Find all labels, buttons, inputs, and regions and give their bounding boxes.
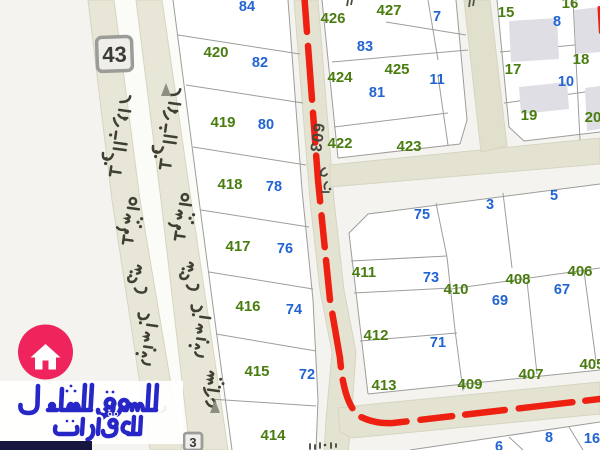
svg-text:72: 72	[299, 367, 315, 383]
svg-text:74: 74	[286, 302, 302, 318]
svg-text:415: 415	[244, 363, 269, 380]
svg-text:5: 5	[550, 188, 558, 204]
svg-text:75: 75	[414, 207, 430, 223]
svg-text:73: 73	[423, 270, 439, 286]
svg-text:408: 408	[505, 271, 530, 288]
svg-text:67: 67	[554, 282, 570, 298]
svg-text:405: 405	[579, 356, 600, 373]
svg-text:419: 419	[210, 114, 235, 131]
svg-text:426: 426	[320, 10, 345, 27]
svg-text:410: 410	[443, 281, 468, 298]
svg-text:71: 71	[430, 335, 446, 351]
svg-text:423: 423	[396, 138, 421, 155]
svg-text:18: 18	[573, 51, 590, 68]
svg-text:414: 414	[260, 427, 286, 444]
svg-text:422: 422	[327, 135, 352, 152]
svg-text:417: 417	[225, 238, 250, 255]
svg-text:80: 80	[258, 117, 274, 133]
svg-text:412: 412	[363, 327, 388, 344]
svg-text:418: 418	[217, 176, 242, 193]
svg-text:8: 8	[553, 14, 561, 30]
svg-text:420: 420	[203, 44, 228, 61]
svg-text:406: 406	[567, 263, 592, 280]
svg-text:76: 76	[277, 241, 293, 257]
svg-text:411: 411	[352, 264, 376, 281]
svg-text:69: 69	[492, 293, 508, 309]
svg-text:3: 3	[486, 197, 494, 213]
svg-text:416: 416	[235, 298, 260, 315]
svg-text:11: 11	[429, 72, 444, 88]
svg-text:15: 15	[498, 4, 515, 21]
svg-text:6: 6	[495, 439, 503, 450]
svg-text:425: 425	[384, 61, 409, 78]
svg-text:424: 424	[327, 69, 353, 86]
svg-text:81: 81	[369, 85, 385, 101]
svg-text:409: 409	[457, 376, 482, 393]
svg-text:20: 20	[585, 109, 600, 126]
svg-text:17: 17	[505, 61, 522, 78]
svg-text:43: 43	[102, 42, 127, 68]
svg-text:83: 83	[357, 39, 373, 55]
svg-text:603: 603	[306, 122, 326, 154]
svg-text:413: 413	[371, 377, 396, 394]
svg-text:3: 3	[189, 435, 196, 450]
svg-text:7: 7	[433, 9, 441, 25]
svg-text:78: 78	[266, 179, 282, 195]
svg-text:407: 407	[518, 366, 543, 383]
svg-text:16: 16	[584, 431, 600, 447]
svg-text:19: 19	[521, 107, 538, 124]
svg-text:10: 10	[558, 74, 574, 90]
svg-text:82: 82	[252, 55, 268, 71]
svg-text:8: 8	[545, 430, 553, 446]
svg-text:84: 84	[239, 0, 255, 15]
svg-text:16: 16	[562, 0, 579, 12]
svg-text:427: 427	[376, 2, 401, 19]
